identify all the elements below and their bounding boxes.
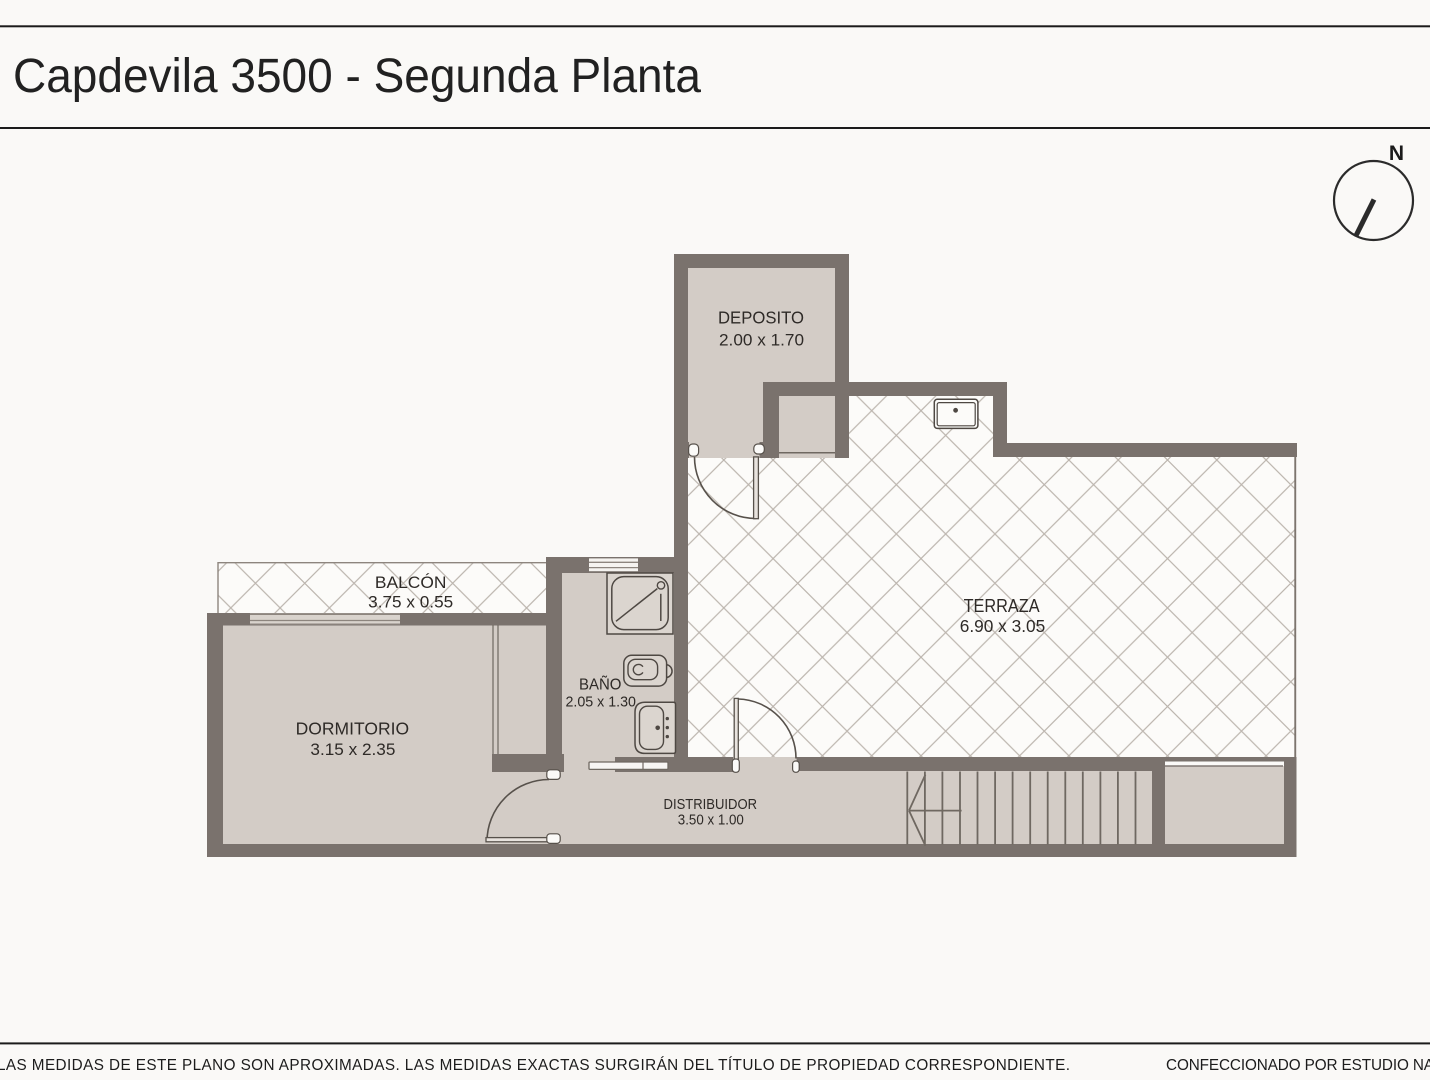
svg-text:2.00 x 1.70: 2.00 x 1.70 xyxy=(719,330,804,349)
svg-text:3.50 x 1.00: 3.50 x 1.00 xyxy=(678,813,744,829)
svg-text:BAÑO: BAÑO xyxy=(579,677,622,694)
svg-text:3.75 x 0.55: 3.75 x 0.55 xyxy=(368,594,453,612)
svg-text:DEPOSITO: DEPOSITO xyxy=(718,308,804,328)
svg-text:DISTRIBUIDOR: DISTRIBUIDOR xyxy=(664,797,758,813)
svg-text:LAS MEDIDAS DE ESTE PLANO SON: LAS MEDIDAS DE ESTE PLANO SON APROXIMADA… xyxy=(0,1057,1070,1074)
svg-text:CONFECCIONADO POR ESTUDIO NA: CONFECCIONADO POR ESTUDIO NA xyxy=(1166,1057,1430,1074)
svg-text:3.15 x 2.35: 3.15 x 2.35 xyxy=(310,740,395,759)
svg-text:TERRAZA: TERRAZA xyxy=(964,596,1040,616)
svg-text:Capdevila 3500 - Segunda Plant: Capdevila 3500 - Segunda Planta xyxy=(13,50,701,103)
svg-text:6.90 x 3.05: 6.90 x 3.05 xyxy=(960,616,1046,636)
svg-text:2.05 x 1.30: 2.05 x 1.30 xyxy=(565,694,636,711)
svg-text:N: N xyxy=(1389,142,1404,165)
svg-text:BALCÓN: BALCÓN xyxy=(375,573,447,592)
svg-text:DORMITORIO: DORMITORIO xyxy=(296,718,410,738)
